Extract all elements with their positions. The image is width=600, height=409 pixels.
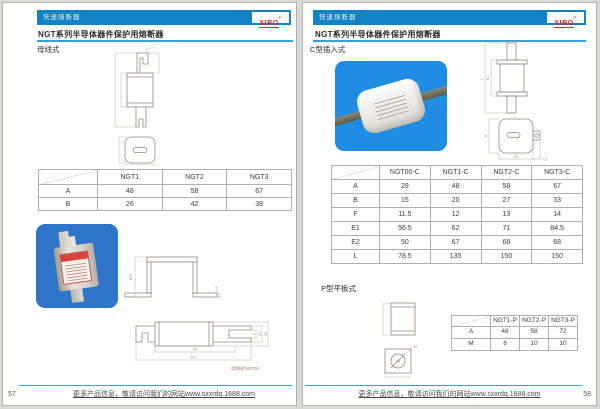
dim-label: L — [480, 78, 484, 80]
drawing-caption: 母线式NGT00 — [231, 366, 259, 372]
p-type-side-view-drawing — [377, 299, 422, 341]
header-category-label: 快速熔断器 — [319, 10, 357, 25]
table-row: A29485867 — [332, 180, 583, 194]
table-row: B264238 — [39, 198, 292, 211]
table-cell: 135 — [430, 250, 481, 264]
table-column-header: NGT00-C — [380, 166, 431, 180]
table-cell: 27 — [481, 194, 532, 208]
page-title: NGT系列半导体器件保护用熔断器 — [38, 29, 164, 40]
table-cell: 150 — [481, 250, 532, 264]
table-cell: 48 — [98, 185, 163, 198]
table-column-header: NGT1-P — [491, 316, 520, 327]
table-cell: 26 — [98, 198, 163, 211]
table-column-header: NGT1 — [98, 170, 163, 185]
table-cell: 48 — [491, 327, 520, 339]
table-cell: 14 — [532, 208, 583, 222]
p-type-bottom-view-drawing: M M — [375, 343, 420, 381]
table-row: F11.5121314 — [332, 208, 583, 222]
table-cell: 11.5 — [380, 208, 431, 222]
section-label-p-type: P型平板式 — [321, 283, 356, 294]
table-corner-cell — [452, 316, 491, 327]
footer-website-text: 更多产品信息，敬请访问我们的网站www.sxxrdq.1688.com — [37, 389, 291, 399]
fuse-dimension-drawing-bus — [87, 43, 207, 165]
table-row: M81010 — [452, 339, 578, 351]
table-row-header: A — [332, 180, 380, 194]
size-table-p-type: NGT1-PNGT2-PNGT3-PA485872M81010 — [451, 315, 578, 351]
table-cell: 12 — [430, 208, 481, 222]
table-row: A485872 — [452, 327, 578, 339]
product-photo-bus-fuse — [36, 224, 118, 308]
page-title: NGT系列半导体器件保护用熔断器 — [315, 29, 441, 40]
table-column-header: NGT1-C — [430, 166, 481, 180]
table-cell: 62 — [430, 222, 481, 236]
table-header-row: NGT1-PNGT2-PNGT3-P — [452, 316, 578, 327]
table-row: E156.5627184.5 — [332, 222, 583, 236]
thread-mark-label: M — [396, 359, 400, 364]
table-corner-cell — [39, 170, 98, 185]
dim-label: 28 — [264, 332, 268, 336]
table-column-header: NGT3-P — [549, 316, 578, 327]
footer-divider — [19, 385, 292, 386]
table-row-header: B — [39, 198, 98, 211]
fuse-blade-bottom — [70, 288, 84, 303]
table-cell: 20 — [430, 194, 481, 208]
table-row-header: A — [452, 327, 491, 339]
table-cell: 10 — [520, 339, 549, 351]
header-bar: 快速熔断器 XIRO® — [37, 10, 291, 25]
page-right: 快速熔断器 XIRO® NGT系列半导体器件保护用熔断器 C型插入式 L — [302, 2, 597, 406]
section-label-bus-type: 母线式 — [37, 44, 60, 55]
fuse-image — [49, 227, 105, 305]
product-photo-c-fuse — [335, 61, 447, 151]
table-row: B15202733 — [332, 194, 583, 208]
fuse-label — [59, 250, 92, 285]
table-row-header: F — [332, 208, 380, 222]
size-table-bus: NGT1NGT2NGT3A485867B264238 — [38, 169, 292, 211]
dim-label: A — [484, 134, 488, 137]
table-cell: 38 — [227, 198, 292, 211]
table-header-row: NGT1NGT2NGT3 — [39, 170, 292, 185]
table-cell: 33 — [532, 194, 583, 208]
table-cell: 68 — [532, 236, 583, 250]
table-cell: 42 — [162, 198, 227, 211]
table-cell: 8 — [491, 339, 520, 351]
c-type-side-view-drawing: L E1 F — [473, 39, 548, 119]
table-column-header: NGT3 — [227, 170, 292, 185]
table-cell: 29 — [380, 180, 431, 194]
footer-divider — [305, 385, 582, 386]
table-cell: 84.5 — [532, 222, 583, 236]
dim-label: 100 — [190, 356, 196, 360]
dim-label: 2.5 — [215, 287, 219, 292]
table-cell: 78.5 — [380, 250, 431, 264]
section-label-c-type: C型插入式 — [310, 44, 345, 55]
table-cell: 150 — [532, 250, 583, 264]
brand-logo: XIRO® — [547, 12, 584, 23]
table-cell: 50 — [380, 236, 431, 250]
table-corner-cell — [332, 166, 380, 180]
table-cell: 68 — [481, 236, 532, 250]
fuse-image — [335, 63, 447, 150]
fuse-front-view-drawing: 80 100 9 20 28 — [125, 309, 275, 364]
dim-label: E1 — [486, 76, 490, 80]
table-cell: 67 — [532, 180, 583, 194]
table-cell: 15 — [380, 194, 431, 208]
table-column-header: NGT2 — [162, 170, 227, 185]
table-cell: 71 — [481, 222, 532, 236]
table-cell: 67 — [430, 236, 481, 250]
dim-label: 80 — [193, 348, 197, 352]
header-category-label: 快速熔断器 — [43, 10, 81, 25]
table-column-header: NGT3-C — [532, 166, 583, 180]
catalog-spread: 快速熔断器 XIRO® NGT系列半导体器件保护用熔断器 母线式 — [0, 0, 600, 409]
dim-label: 20 — [258, 332, 262, 336]
title-underline — [37, 40, 293, 42]
table-row: A485867 — [39, 185, 292, 198]
page-number: 58 — [583, 391, 591, 398]
table-cell: 58 — [481, 180, 532, 194]
table-cell: 58 — [162, 185, 227, 198]
table-row-header: M — [452, 339, 491, 351]
table-cell: 72 — [549, 327, 578, 339]
footer-website-text: 更多产品信息，敬请访问我们的网站www.sxxrdq.1688.com — [313, 389, 586, 399]
page-number: 57 — [8, 391, 16, 398]
table-row-header: L — [332, 250, 380, 264]
brand-logo: XIRO® — [252, 12, 289, 23]
table-cell: 48 — [430, 180, 481, 194]
dim-label: F — [519, 40, 521, 44]
table-header-row: NGT00-CNGT1-CNGT2-CNGT3-C — [332, 166, 583, 180]
page-left: 快速熔断器 XIRO® NGT系列半导体器件保护用熔断器 母线式 — [2, 2, 297, 406]
registered-mark: ® — [279, 15, 282, 20]
table-row: L78.5135150150 — [332, 250, 583, 264]
table-column-header: NGT2-P — [520, 316, 549, 327]
header-bar: 快速熔断器 XIRO® — [313, 10, 586, 25]
c-type-top-view-drawing: A 23 7.5 — [481, 115, 556, 163]
dim-label: 68.5 — [129, 274, 133, 281]
table-column-header: NGT2-C — [481, 166, 532, 180]
fuse-label-text-lines — [65, 261, 88, 282]
table-cell: 10 — [549, 339, 578, 351]
dim-label: M — [414, 345, 417, 349]
table-row-header: E1 — [332, 222, 380, 236]
registered-mark: ® — [574, 15, 577, 20]
dim-label: 9 — [252, 333, 256, 335]
table-cell: 58 — [520, 327, 549, 339]
dim-label: 23 — [514, 155, 518, 159]
bracket-side-view-drawing: 68.5 2.5 — [121, 251, 221, 311]
table-row-header: A — [39, 185, 98, 198]
table-cell: 13 — [481, 208, 532, 222]
size-table-c-type: NGT00-CNGT1-CNGT2-CNGT3-CA29485867B15202… — [331, 165, 583, 264]
table-cell: 56.5 — [380, 222, 431, 236]
dim-label: 7.5 — [542, 158, 547, 162]
table-row: E250676868 — [332, 236, 583, 250]
table-cell: 67 — [227, 185, 292, 198]
fuse-blade-notch — [68, 229, 76, 237]
table-row-header: E2 — [332, 236, 380, 250]
table-row-header: B — [332, 194, 380, 208]
